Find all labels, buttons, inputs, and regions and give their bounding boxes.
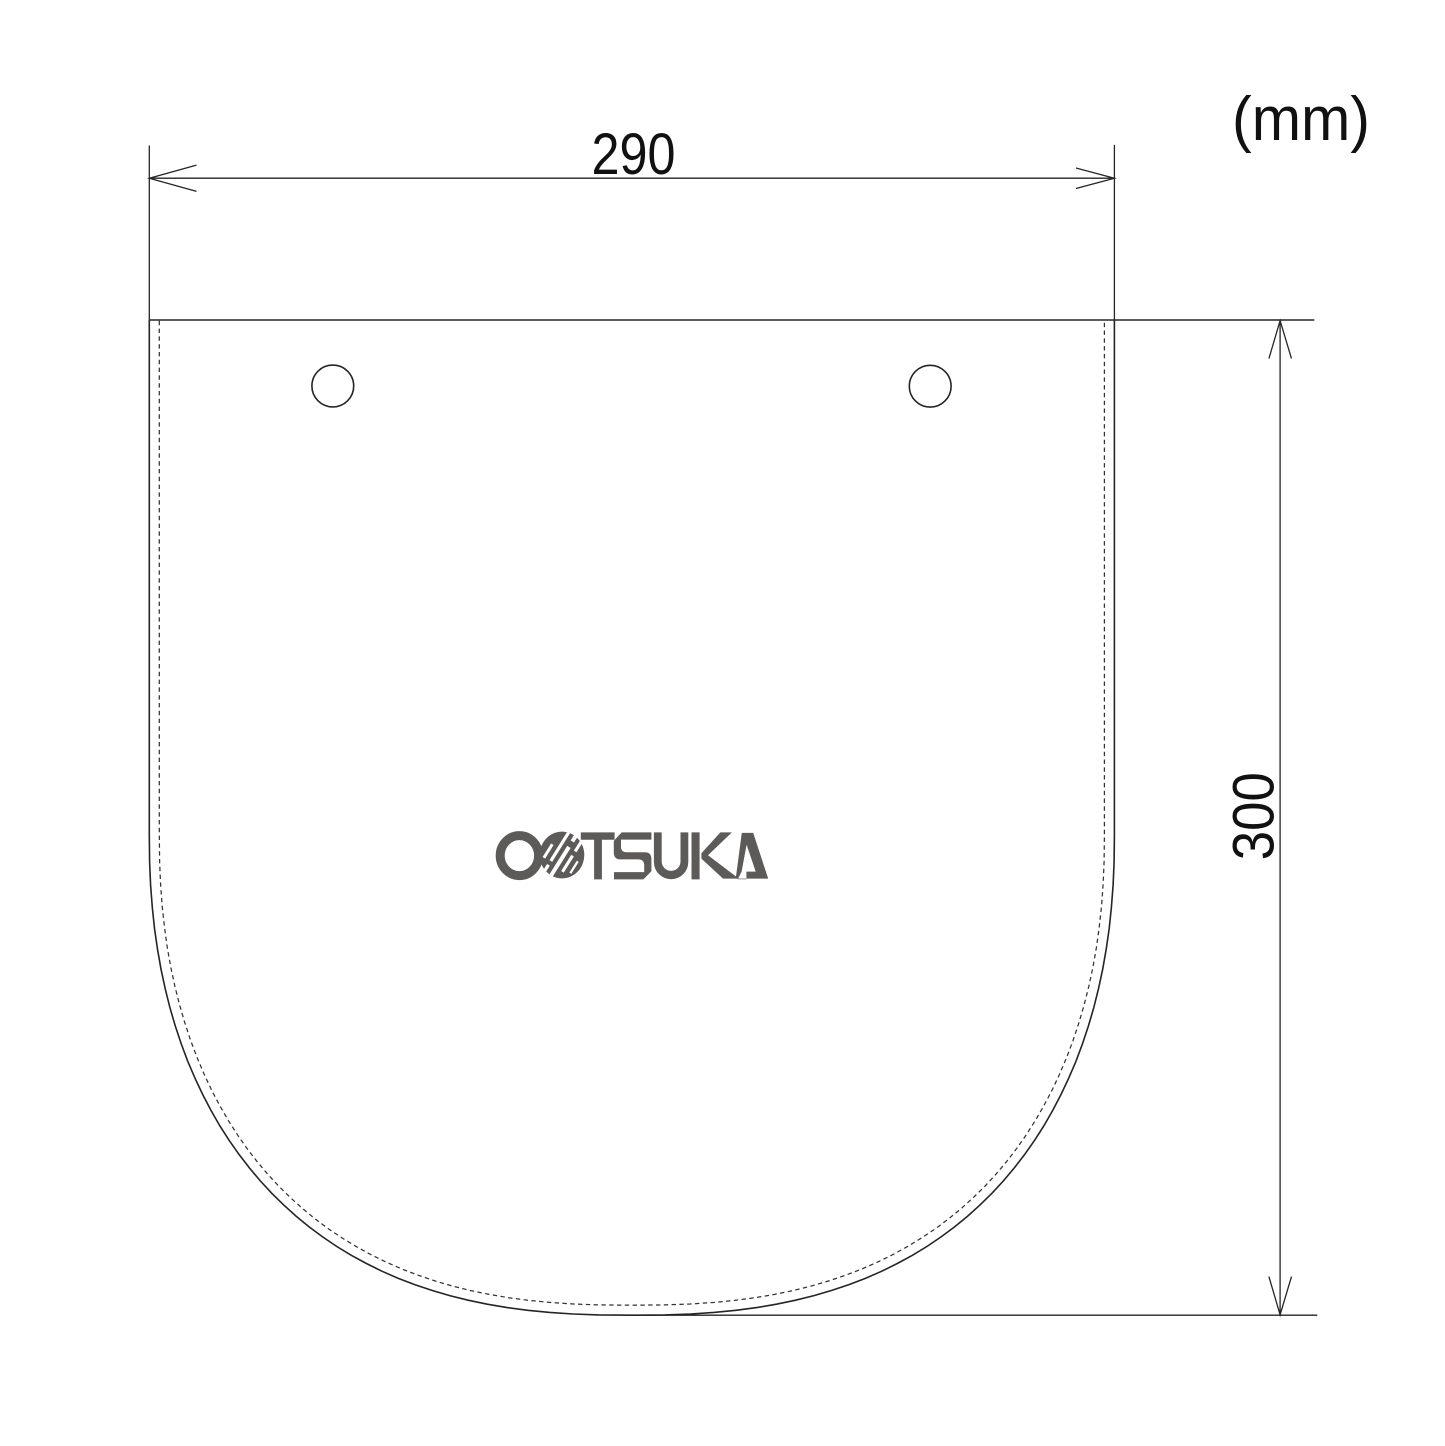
svg-text:(mm): (mm) (1232, 85, 1370, 154)
svg-text:300: 300 (1221, 772, 1286, 860)
svg-text:290: 290 (592, 122, 676, 187)
